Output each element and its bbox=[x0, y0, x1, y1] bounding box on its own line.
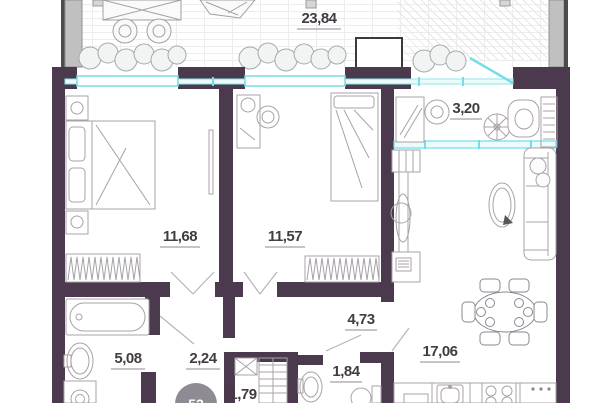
plant-row bbox=[413, 45, 466, 72]
single-bed-symbol bbox=[331, 93, 378, 201]
area-label-wardrobe: 1,79 bbox=[229, 386, 256, 403]
area-label-hallway: 4,73 bbox=[347, 311, 374, 328]
outdoor-table-symbol bbox=[103, 0, 181, 20]
living-room-furniture bbox=[391, 148, 556, 403]
plant-row bbox=[79, 43, 186, 71]
floor-plan: 23,84 3,20 11,68 11,57 4,73 17,06 5,08 2… bbox=[0, 0, 605, 403]
area-label-kitchen-living: 17,06 bbox=[422, 343, 457, 360]
railing-post bbox=[93, 0, 103, 6]
outer-wall-left bbox=[52, 67, 65, 403]
floor-mirror-symbol bbox=[489, 183, 515, 227]
terrace-right-wall bbox=[549, 0, 564, 67]
kitchen-counter-symbol bbox=[394, 383, 556, 403]
desk-symbol bbox=[237, 95, 260, 148]
bedroom-1-furniture bbox=[66, 96, 213, 282]
terrace-left-edge bbox=[61, 0, 65, 67]
loggia-chair-symbol bbox=[425, 100, 449, 124]
door-living-room bbox=[392, 328, 409, 351]
area-label-bedroom-2: 11,57 bbox=[268, 228, 302, 245]
sink-symbol bbox=[437, 385, 463, 403]
wall-mirror-symbol bbox=[209, 130, 213, 194]
bathroom-sink-symbol bbox=[64, 343, 93, 379]
radiator-symbol bbox=[541, 97, 557, 147]
nightstand-symbol bbox=[66, 96, 88, 120]
outdoor-chair-symbol bbox=[153, 25, 165, 37]
area-label-hall: 2,24 bbox=[189, 350, 217, 367]
dining-table-symbol bbox=[474, 292, 536, 332]
apartment-number-badge: 52 bbox=[175, 383, 217, 403]
shelving-symbol bbox=[259, 358, 287, 403]
outdoor-chair-symbol bbox=[119, 25, 131, 37]
potted-plant-symbol bbox=[484, 114, 510, 140]
area-label-terrace: 23,84 bbox=[301, 10, 337, 27]
area-label-bedroom-1: 11,68 bbox=[163, 228, 197, 245]
wardrobe-hangers-symbol bbox=[305, 256, 379, 282]
railing-post bbox=[306, 0, 316, 8]
area-label-loggia: 3,20 bbox=[452, 100, 479, 117]
loggia-desk-symbol bbox=[396, 97, 424, 142]
wall-bedrooms bbox=[219, 89, 233, 297]
armchair-symbol bbox=[508, 100, 539, 137]
vent-shaft bbox=[356, 38, 402, 70]
area-label-wc: 1,84 bbox=[332, 363, 360, 380]
window-bedroom-2 bbox=[245, 76, 345, 86]
door-bedroom-1 bbox=[171, 272, 214, 294]
floor-plan-drawing: 23,84 3,20 11,68 11,57 4,73 17,06 5,08 2… bbox=[0, 0, 605, 403]
toilet-symbol bbox=[351, 386, 381, 403]
double-bed-symbol bbox=[66, 121, 155, 209]
sofa-symbol bbox=[524, 148, 556, 260]
bathtub-symbol bbox=[66, 299, 149, 335]
wc-sink-symbol bbox=[298, 372, 322, 402]
door-bathroom bbox=[160, 316, 194, 344]
area-label-bathroom: 5,08 bbox=[114, 350, 141, 367]
terrace-right-edge bbox=[564, 0, 568, 67]
plant-row bbox=[239, 43, 346, 71]
nightstand-symbol bbox=[66, 211, 88, 234]
stove-symbol bbox=[482, 383, 516, 403]
railing-post bbox=[500, 0, 510, 6]
window-bedroom-1 bbox=[77, 76, 178, 86]
apartment-number: 52 bbox=[188, 396, 204, 403]
dishwasher-symbol bbox=[404, 394, 428, 403]
door-wc bbox=[326, 335, 361, 351]
bedroom-2-furniture bbox=[237, 93, 379, 282]
terrace-furniture bbox=[103, 0, 255, 43]
door-bedroom-2 bbox=[244, 272, 277, 294]
outer-wall-right bbox=[556, 89, 570, 403]
wardrobe-hangers-symbol bbox=[66, 254, 140, 282]
tv-stand-symbol bbox=[391, 150, 420, 282]
washing-machine-symbol bbox=[64, 381, 96, 403]
shelf-box-symbol bbox=[235, 358, 257, 375]
